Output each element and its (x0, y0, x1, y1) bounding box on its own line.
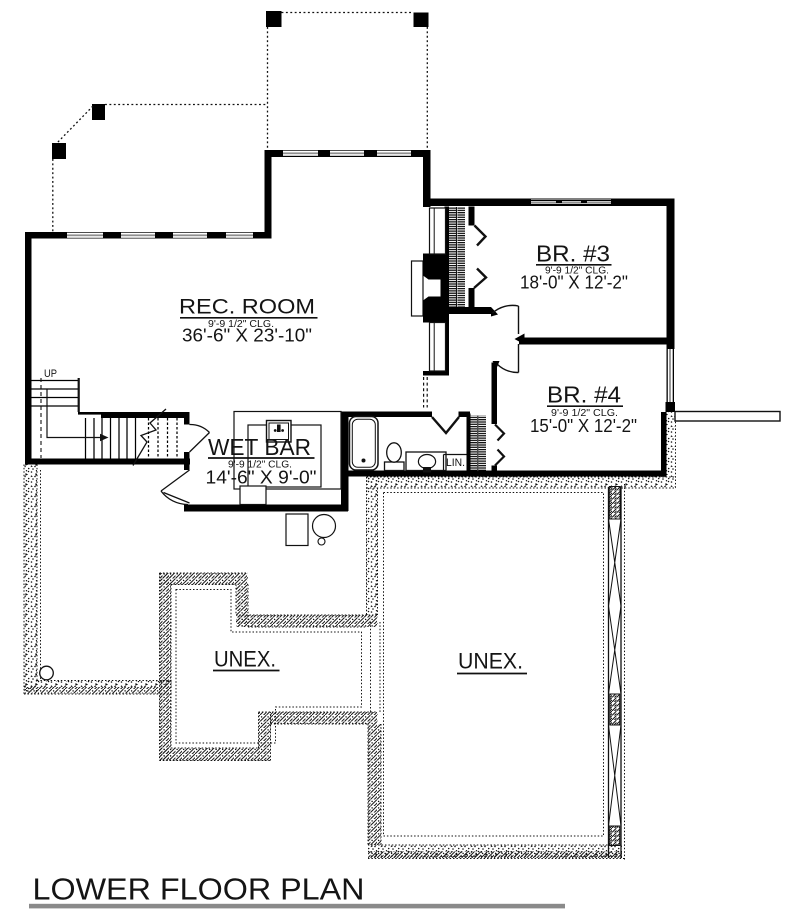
svg-text:18'-0" X 12'-2": 18'-0" X 12'-2" (520, 273, 628, 293)
svg-text:14'-6" X 9'-0": 14'-6" X 9'-0" (206, 468, 317, 488)
svg-text:UNEX.: UNEX. (214, 647, 276, 672)
svg-text:UNEX.: UNEX. (458, 649, 523, 674)
svg-text:36'-6" X 23'-10": 36'-6" X 23'-10" (182, 326, 312, 346)
svg-text:LOWER FLOOR PLAN: LOWER FLOOR PLAN (33, 872, 365, 907)
svg-text:BR. #3: BR. #3 (536, 241, 610, 267)
svg-text:UP: UP (44, 368, 57, 380)
svg-text:WET BAR: WET BAR (208, 434, 311, 460)
svg-text:15'-0" X 12'-2": 15'-0" X 12'-2" (530, 416, 637, 436)
svg-text:LIN.: LIN. (446, 457, 465, 469)
svg-text:BR. #4: BR. #4 (547, 382, 621, 408)
svg-text:REC. ROOM: REC. ROOM (179, 296, 315, 319)
